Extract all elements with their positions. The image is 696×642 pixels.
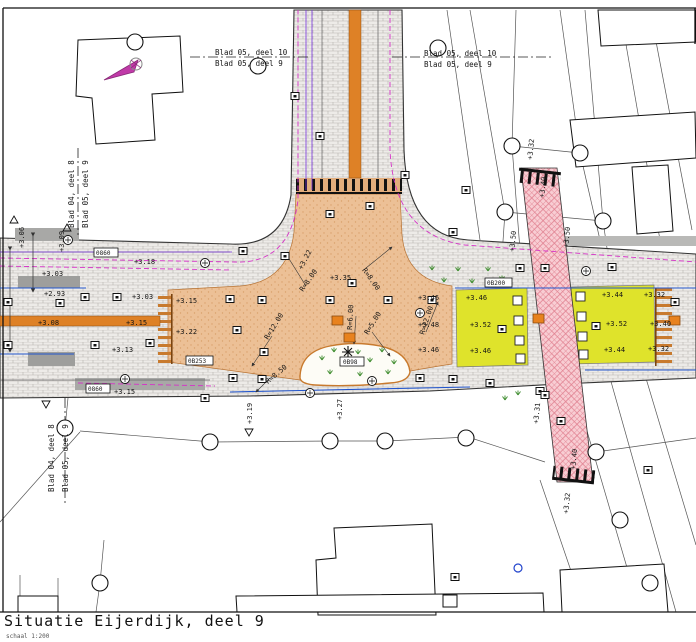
- elevation-label: +3.46: [470, 347, 491, 355]
- sheet-ref-label: Blad 05, deel 10: [424, 49, 497, 58]
- elevation-label: +3.03: [42, 270, 63, 278]
- elevation-label: +3.32: [648, 345, 669, 353]
- elevation-label: +3.46: [466, 294, 487, 302]
- elevation-label: +3.27: [336, 399, 344, 420]
- elevation-label: +3.46: [418, 294, 439, 302]
- situation-drawing-sheet: 0860 0860 0B200 0B253 0B98 Blad 05, deel…: [0, 0, 696, 642]
- gutter-north: [349, 10, 361, 178]
- elevation-label: +3.13: [112, 346, 133, 354]
- svg-text:0860: 0860: [88, 386, 103, 393]
- hydrant-icon: [514, 564, 522, 572]
- elevation-label: +3.35: [330, 274, 351, 282]
- elevation-label: +3.19: [246, 403, 254, 424]
- elevation-label: +3.15: [114, 388, 135, 396]
- code-label: 0860: [86, 384, 110, 393]
- verge-strip: [560, 236, 696, 246]
- situation-drawing-canvas: 0860 0860 0B200 0B253 0B98 Blad 05, deel…: [0, 0, 696, 642]
- elevation-label: +3.15: [176, 297, 197, 305]
- drawing-title: Situatie Eijerdijk, deel 9: [4, 612, 265, 630]
- svg-text:0B200: 0B200: [487, 280, 505, 287]
- elevation-label: +3.08: [38, 319, 59, 327]
- code-label: 0B200: [485, 278, 512, 287]
- elevation-label: +3.32: [644, 291, 665, 299]
- elevation-label: +3.22: [176, 328, 197, 336]
- elevation-label: +3.06: [18, 227, 26, 248]
- sheet-ref-label: Blad 05, deel 9: [424, 60, 492, 69]
- radius-label: R=6.00: [346, 304, 355, 330]
- sheet-ref-label: Blad 04, deel 8: [47, 424, 56, 492]
- svg-text:0B98: 0B98: [343, 359, 358, 366]
- building-bottom-left-box: [18, 596, 58, 612]
- elevation-label: +3.52: [470, 321, 491, 329]
- building-bottom-strip: [236, 593, 544, 612]
- building-right: [570, 112, 696, 167]
- building-top-right: [598, 10, 696, 46]
- svg-text:0860: 0860: [96, 250, 111, 257]
- elevation-label: +3.09: [58, 231, 66, 252]
- elevation-label: +3.03: [132, 293, 153, 301]
- elevation-label: +3.44: [604, 346, 625, 354]
- elevation-label: +3.31: [532, 402, 542, 424]
- elevation-label: +3.52: [606, 320, 627, 328]
- elevation-label: +3.32: [562, 492, 572, 514]
- elevation-label: +3.46: [418, 346, 439, 354]
- code-label: 0B253: [186, 356, 213, 365]
- sheet-ref-label: Blad 05, deel 9: [61, 424, 70, 492]
- sheet-ref-label: Blad 05, deel 10: [215, 48, 288, 57]
- code-label: 0860: [94, 248, 118, 257]
- small-shed: [443, 595, 457, 607]
- sheet-ref-label: Blad 05, deel 9: [215, 59, 283, 68]
- elevation-label: +3.18: [134, 258, 155, 266]
- elevation-label: +3.44: [602, 291, 623, 299]
- elevation-label: +3.32: [526, 138, 536, 160]
- building-right-wing: [632, 165, 673, 234]
- building-top-left: [76, 36, 183, 144]
- elevation-label: +3.15: [126, 319, 147, 327]
- sheet-ref-label: Blad 04, deel 8: [67, 160, 76, 228]
- svg-text:0B253: 0B253: [188, 358, 206, 365]
- sheet-ref-label: Blad 05, deel 9: [81, 160, 90, 228]
- elevation-label: +2.93: [44, 290, 65, 298]
- code-label: 0B98: [340, 357, 364, 366]
- drawing-scale-note: schaal 1:200: [6, 633, 49, 640]
- elevation-label: +3.40: [650, 320, 671, 328]
